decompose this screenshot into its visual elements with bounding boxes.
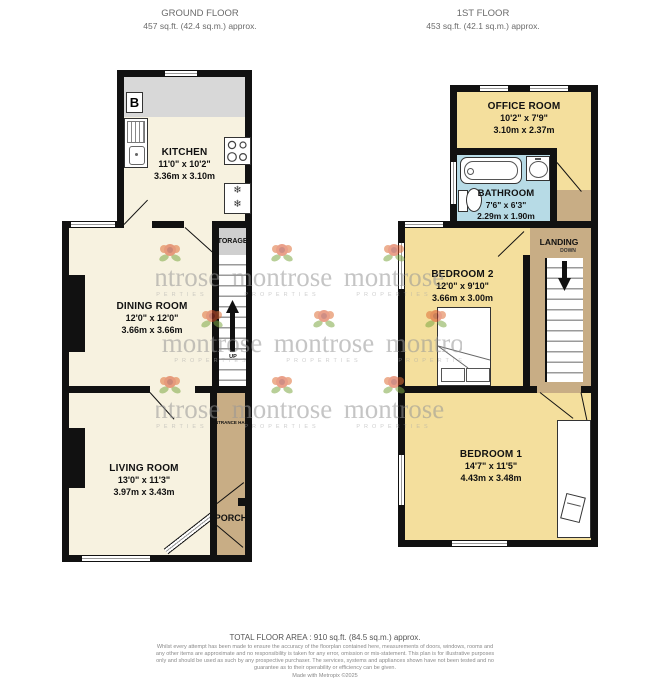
watermark-tile: montrose PROPERTIES <box>380 306 462 372</box>
living-window <box>82 555 150 562</box>
bathroom-imperial: 7'6" x 6'3" <box>455 200 557 211</box>
dining-window <box>71 221 115 228</box>
rose-logo-icon <box>382 240 406 264</box>
watermark-tile: montrose PROPERTIES <box>226 240 338 306</box>
bed-pillow-2 <box>466 368 490 382</box>
snowflake-glyph-1: ❄ <box>225 184 250 198</box>
watermark-brand: montrose <box>162 330 263 357</box>
living-room-imperial: 13'0" x 11'3" <box>69 475 219 487</box>
watermark-tile: montrose PROPERTIES <box>156 306 268 372</box>
living-room-label: LIVING ROOM 13'0" x 11'3" 3.97m x 3.43m <box>69 462 219 499</box>
watermark-tagline: PROPERTIES <box>244 292 319 298</box>
snowflake-glyph-2: ❄ <box>225 198 250 212</box>
watermark-tile: montrose PROPERTIES <box>156 372 226 438</box>
watermark-brand: montrose <box>344 396 445 423</box>
rose-logo-icon <box>158 240 182 264</box>
bedroom1-name: BEDROOM 1 <box>411 448 571 461</box>
watermark-tagline: PROPERTIES <box>356 292 431 298</box>
rose-logo-icon <box>200 306 224 330</box>
bedroom1-metric: 4.43m x 3.48m <box>411 473 571 485</box>
watermark-brand: montrose <box>274 330 375 357</box>
down-arrow-icon <box>558 261 571 291</box>
bathroom-label: BATHROOM 7'6" x 6'3" 2.29m x 1.90m <box>455 188 557 221</box>
landing-label: LANDING <box>527 237 591 247</box>
disclaimer-text: Whilst every attempt has been made to en… <box>156 644 494 671</box>
wardrobe <box>557 420 591 538</box>
first-floor-header: 1ST FLOOR 453 sq.ft. (42.1 sq.m.) approx… <box>373 8 593 32</box>
landing-upper-floor <box>557 190 591 221</box>
watermark-brand: montrose <box>386 330 462 357</box>
watermark-tagline: PROPERTIES <box>356 424 431 430</box>
rose-logo-icon <box>312 306 336 330</box>
office-room-imperial: 10'2" x 7'9" <box>453 113 595 125</box>
kitchen-window <box>165 70 197 77</box>
bedroom1-label: BEDROOM 1 14'7" x 11'5" 4.43m x 3.48m <box>411 448 571 485</box>
watermark-brand: montrose <box>344 264 445 291</box>
total-floor-area: TOTAL FLOOR AREA : 910 sq.ft. (84.5 sq.m… <box>0 633 650 642</box>
porch-label: PORCH <box>206 513 256 523</box>
bedroom2-top-window <box>405 221 443 228</box>
ground-floor-area: 457 sq.ft. (42.4 sq.m.) approx. <box>60 21 340 32</box>
kitchen-metric: 3.36m x 3.10m <box>117 171 252 183</box>
bathroom-metric: 2.29m x 1.90m <box>455 211 557 222</box>
down-label: DOWN <box>548 248 588 254</box>
boiler-label: B <box>130 95 139 110</box>
watermark-brand: montrose <box>232 264 333 291</box>
kitchen-door-gap <box>124 221 152 228</box>
living-room-name: LIVING ROOM <box>69 462 219 475</box>
porch-wall-stub <box>238 498 252 506</box>
watermark-tile: montrose PROPERTIES <box>156 240 226 306</box>
hall-door-gap <box>184 221 212 228</box>
boiler-box: B <box>126 92 143 113</box>
bedroom1-door-gap <box>537 386 581 393</box>
watermark-row: montrose PROPERTIES montrose PROPERTIES … <box>156 306 462 372</box>
kitchen-imperial: 11'0" x 10'2" <box>117 159 252 171</box>
bathtub-icon <box>460 157 522 184</box>
bedroom1-imperial: 14'7" x 11'5" <box>411 461 571 473</box>
watermark-tile: montrose PROPERTIES <box>338 240 450 306</box>
rose-logo-icon <box>158 372 182 396</box>
watermark-tile: montrose PROPERTIES <box>338 372 450 438</box>
freezer-icon: ❄ ❄ <box>224 183 251 214</box>
watermark-tagline: PROPERTIES <box>286 358 361 364</box>
watermark-brand: montrose <box>156 396 220 423</box>
bedroom1-bottom-window <box>452 540 507 547</box>
watermark-tagline: PROPERTIES <box>156 292 208 298</box>
watermark-row: montrose PROPERTIES montrose PROPERTIES … <box>156 372 462 438</box>
kitchen-name: KITCHEN <box>117 146 252 159</box>
bathroom-name: BATHROOM <box>455 188 557 200</box>
footer-disclaimer-block: Whilst every attempt has been made to en… <box>155 644 495 678</box>
rose-logo-icon <box>270 372 294 396</box>
living-room-metric: 3.97m x 3.43m <box>69 487 219 499</box>
ground-floor-header: GROUND FLOOR 457 sq.ft. (42.4 sq.m.) app… <box>60 8 340 32</box>
bedroom1-left-window <box>398 455 405 505</box>
watermark: montrose PROPERTIES montrose PROPERTIES … <box>156 240 462 445</box>
watermark-tagline: PROPERTIES <box>244 424 319 430</box>
made-with-text: Made with Metropix ©2025 <box>292 673 358 678</box>
watermark-tile: montrose PROPERTIES <box>226 372 338 438</box>
ground-floor-title: GROUND FLOOR <box>60 8 340 21</box>
watermark-tagline: PROPERTIES <box>398 358 462 364</box>
office-window-1 <box>480 85 508 92</box>
sink-drainer <box>127 121 145 143</box>
wardrobe-item <box>560 493 586 523</box>
first-floor-area: 453 sq.ft. (42.1 sq.m.) approx. <box>373 21 593 32</box>
watermark-brand: montrose <box>232 396 333 423</box>
kitchen-label: KITCHEN 11'0" x 10'2" 3.36m x 3.10m <box>117 146 252 183</box>
office-window-2 <box>530 85 568 92</box>
office-room-label: OFFICE ROOM 10'2" x 7'9" 3.10m x 2.37m <box>453 100 595 137</box>
watermark-brand: montrose <box>156 264 220 291</box>
floorplan-canvas: GROUND FLOOR 457 sq.ft. (42.4 sq.m.) app… <box>0 0 650 678</box>
watermark-tagline: PROPERTIES <box>156 424 208 430</box>
office-room-name: OFFICE ROOM <box>453 100 595 113</box>
watermark-tagline: PROPERTIES <box>174 358 249 364</box>
first-floor-title: 1ST FLOOR <box>373 8 593 21</box>
watermark-tile: montrose PROPERTIES <box>268 306 380 372</box>
basin-icon <box>526 156 550 181</box>
rose-logo-icon <box>382 372 406 396</box>
rose-logo-icon <box>270 240 294 264</box>
watermark-row: montrose PROPERTIES montrose PROPERTIES … <box>156 240 462 306</box>
office-room-metric: 3.10m x 2.37m <box>453 125 595 137</box>
rose-logo-icon <box>424 306 448 330</box>
